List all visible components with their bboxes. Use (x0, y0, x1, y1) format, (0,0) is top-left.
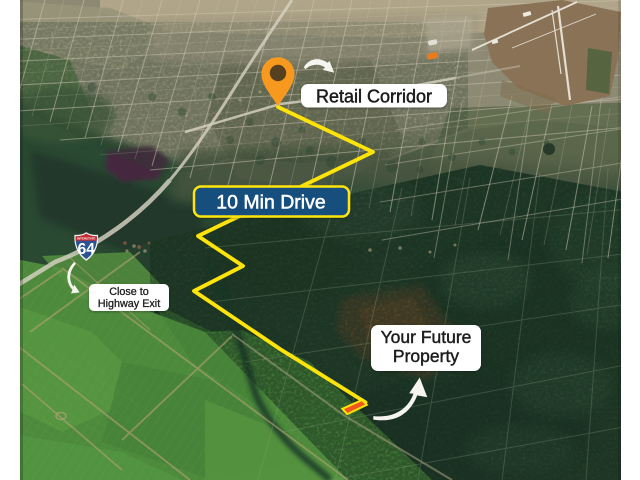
svg-text:Property: Property (393, 346, 459, 366)
svg-text:Your Future: Your Future (381, 327, 472, 347)
svg-text:64: 64 (78, 241, 96, 258)
svg-text:INTERSTATE: INTERSTATE (77, 237, 95, 241)
svg-text:Retail Corridor: Retail Corridor (316, 86, 432, 106)
svg-text:Highway Exit: Highway Exit (98, 298, 160, 310)
svg-text:Close to: Close to (109, 286, 149, 298)
svg-text:10 Min Drive: 10 Min Drive (216, 192, 325, 214)
